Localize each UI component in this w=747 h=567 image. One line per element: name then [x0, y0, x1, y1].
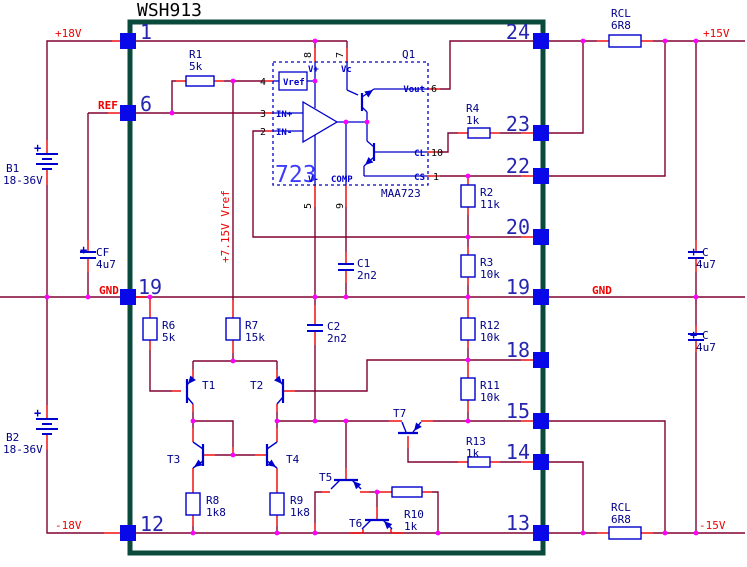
- pin-square-right-15: [533, 413, 549, 429]
- label-ic-pin_numbers-p9: 9: [335, 203, 346, 209]
- pin-square-left-6: [120, 105, 136, 121]
- resistor-body-r9: [270, 493, 284, 515]
- transistor-lead: [193, 442, 203, 449]
- label-capacitors-3-polarity: +: [690, 245, 697, 259]
- label-pins-right-5: 18: [506, 338, 530, 362]
- resistor-body-r11: [461, 378, 475, 400]
- resistor-body-r12: [461, 318, 475, 340]
- label-transistors-0-name: T1: [202, 379, 215, 392]
- label-pins-left-1: 6: [140, 92, 152, 116]
- label-capacitors-3-value: 4u7: [696, 258, 716, 271]
- label-ic-signals-cl: CL: [414, 149, 425, 159]
- junction-dot: [313, 79, 318, 84]
- label-resistors-0-value: 5k: [189, 60, 203, 73]
- junction-dot: [663, 531, 668, 536]
- label-ic-output_transistor: Q1: [402, 48, 415, 61]
- pin-square-right-18: [533, 352, 549, 368]
- schematic-canvas: WSH913161912242322201918151413+18VREFGND…: [0, 0, 747, 567]
- label-resistors-6-value: 1k8: [206, 506, 226, 519]
- pin-square-right-20: [533, 229, 549, 245]
- label-capacitors-4-polarity: +: [690, 328, 697, 342]
- label-nets-ref: REF: [98, 99, 118, 112]
- label-pins-right-3: 20: [506, 215, 530, 239]
- label-transistors-1-name: T2: [250, 379, 263, 392]
- label-resistors-8-value: 1k: [404, 520, 418, 533]
- junction-dot: [344, 419, 349, 424]
- label-transistors-6-name: T7: [393, 407, 406, 420]
- label-nets-n15v: -15V: [699, 519, 726, 532]
- label-capacitors-1-value: 2n2: [327, 332, 347, 345]
- junction-dot: [466, 235, 471, 240]
- label-batteries-0-polarity: +: [34, 141, 41, 155]
- junction-dot: [344, 120, 349, 125]
- label-batteries-1-polarity: +: [34, 406, 41, 420]
- wire: [315, 492, 322, 523]
- junction-dot: [466, 295, 471, 300]
- label-resistors-3-value: 1k: [466, 114, 480, 127]
- label-ic-pin_numbers-p10: 10: [431, 148, 443, 159]
- junction-dot: [313, 39, 318, 44]
- label-pins-right-1: 23: [506, 112, 530, 136]
- arrow-t2: [274, 376, 282, 384]
- label-resistors-11-value: 1k: [466, 447, 480, 460]
- label-transistors-5-name: T6: [349, 517, 362, 530]
- label-capacitors-2-value: 4u7: [96, 258, 116, 271]
- wire: [549, 462, 583, 533]
- wire: [440, 41, 533, 89]
- junction-dot: [663, 39, 668, 44]
- resistor-body-r3: [461, 255, 475, 277]
- label-resistors-2-value: 10k: [480, 268, 500, 281]
- label-nets-p15v: +15V: [703, 27, 730, 40]
- label-transistors-2-name: T3: [167, 453, 180, 466]
- wire: [549, 41, 583, 133]
- junction-dot: [191, 531, 196, 536]
- pin-square-left-12: [120, 525, 136, 541]
- label-transistors-3-name: T4: [286, 453, 300, 466]
- wire: [432, 492, 438, 533]
- label-resistors-9-value: 10k: [480, 391, 500, 404]
- junction-dot: [581, 531, 586, 536]
- junction-dot: [375, 490, 380, 495]
- label-pins-right-2: 22: [506, 154, 530, 178]
- label-nets-p18v: +18V: [55, 27, 82, 40]
- arrow-t1: [188, 376, 196, 384]
- schematic-page: WSH913161912242322201918151413+18VREFGND…: [0, 0, 747, 567]
- label-ic-vref_block: Vref: [283, 78, 305, 88]
- pin-square-right-13: [533, 525, 549, 541]
- label-ic-signals-cs: CS: [414, 173, 425, 183]
- junction-dot: [191, 419, 196, 424]
- label-capacitors-2-polarity: +: [80, 243, 87, 257]
- label-ic-signals-vplus: V+: [308, 65, 319, 75]
- arrow-t7: [414, 422, 422, 431]
- resistor-body-r2: [461, 185, 475, 207]
- pin-square-right-23: [533, 125, 549, 141]
- junction-dot: [275, 531, 280, 536]
- label-ic-signals-comp: COMP: [331, 175, 353, 185]
- label-pins-left-2: 19: [138, 275, 162, 299]
- label-capacitors-4-value: 4u7: [696, 341, 716, 354]
- pin-square-right-24: [533, 33, 549, 49]
- junction-dot: [313, 295, 318, 300]
- label-ic-pin_numbers-p7: 7: [335, 52, 346, 58]
- pin-square-left-19: [120, 289, 136, 305]
- wire: [408, 448, 458, 462]
- wire: [193, 421, 233, 447]
- junction-dot: [275, 419, 280, 424]
- junction-dot: [466, 174, 471, 179]
- arrow-t3: [194, 459, 203, 467]
- junction-dot: [694, 39, 699, 44]
- pin-square-right-19: [533, 289, 549, 305]
- arrow-q-out: [364, 90, 373, 97]
- label-ic-signals-vout: Vout: [403, 85, 425, 95]
- junction-dot: [581, 39, 586, 44]
- label-ic-signals-in_minus: IN-: [276, 128, 292, 138]
- wire: [549, 41, 665, 176]
- label-resistors-4-value: 5k: [162, 331, 176, 344]
- label-resistors-13-value: 6R8: [611, 513, 631, 526]
- wire: [549, 421, 665, 533]
- label-pins-right-8: 13: [506, 511, 530, 535]
- ic-internal-wire: [347, 90, 358, 95]
- transistor-lead: [362, 520, 371, 529]
- junction-dot: [313, 419, 318, 424]
- junction-dot: [231, 359, 236, 364]
- wire: [150, 350, 172, 391]
- label-resistors-1-value: 11k: [480, 198, 500, 211]
- junction-dot: [365, 120, 370, 125]
- label-ic-signals-vminus: V-: [308, 175, 319, 185]
- module-border: [130, 22, 543, 553]
- junction-dot: [313, 531, 318, 536]
- junction-dot: [344, 295, 349, 300]
- wire: [172, 81, 176, 113]
- resistor-body-r8: [186, 493, 200, 515]
- pin-square-right-14: [533, 454, 549, 470]
- label-ic-pin_numbers-p3: 3: [260, 109, 266, 120]
- junction-dot: [436, 531, 441, 536]
- opamp-triangle: [303, 102, 337, 142]
- label-pins-right-4: 19: [506, 275, 530, 299]
- transistor-lead: [402, 422, 406, 432]
- label-nets-gnd_left: GND: [99, 284, 119, 297]
- junction-dot: [86, 295, 91, 300]
- label-batteries-0-value: 18-36V: [3, 174, 43, 187]
- resistor-body-rcl-bottom: [609, 527, 641, 539]
- junction-dot: [170, 111, 175, 116]
- junction-dot: [45, 295, 50, 300]
- label-ic-signals-in_plus: IN+: [276, 110, 293, 120]
- label-capacitors-0-value: 2n2: [357, 269, 377, 282]
- label-resistors-12-value: 6R8: [611, 19, 631, 32]
- label-pins-left-3: 12: [140, 512, 164, 536]
- resistor-body-r10: [392, 487, 422, 497]
- label-ic-part: MAA723: [381, 187, 421, 200]
- label-resistors-5-value: 15k: [245, 331, 265, 344]
- pin-square-right-22: [533, 168, 549, 184]
- wire: [47, 41, 112, 140]
- label-pins-left-0: 1: [140, 20, 152, 44]
- junction-dot: [231, 453, 236, 458]
- label-batteries-1-value: 18-36V: [3, 443, 43, 456]
- junction-dot: [694, 531, 699, 536]
- label-resistors-7-value: 1k8: [290, 506, 310, 519]
- resistor-body-r1: [186, 76, 214, 86]
- label-ic-pin_numbers-p4: 4: [260, 77, 266, 88]
- label-nets-n18v: -18V: [55, 519, 82, 532]
- transistor-lead: [331, 480, 340, 489]
- resistor-body-r7: [226, 318, 240, 340]
- label-ic-signals-vc: Vc: [341, 65, 352, 75]
- label-ic-pin_numbers-p1: 1: [433, 172, 439, 183]
- label-transistors-4-name: T5: [319, 471, 332, 484]
- label-title: WSH913: [137, 0, 202, 21]
- junction-dot: [231, 79, 236, 84]
- label-ic-pin_numbers-p2: 2: [260, 127, 266, 138]
- label-ic-pin_numbers-p6: 6: [431, 84, 437, 95]
- label-resistors-10-value: 10k: [480, 331, 500, 344]
- resistor-body-r4: [468, 128, 490, 138]
- label-ic-pin_numbers-p5: 5: [303, 203, 314, 209]
- resistor-body-rcl-top: [609, 35, 641, 47]
- junction-dot: [694, 295, 699, 300]
- label-nets-vref_rail: +7.15V Vref: [219, 190, 232, 263]
- label-pins-right-7: 14: [506, 440, 530, 464]
- resistor-body-r6: [143, 318, 157, 340]
- arrow-t4: [267, 459, 276, 467]
- label-pins-right-0: 24: [506, 20, 530, 44]
- label-nets-gnd_right: GND: [592, 284, 612, 297]
- label-pins-right-6: 15: [506, 399, 530, 423]
- junction-dot: [466, 419, 471, 424]
- pin-square-left-1: [120, 33, 136, 49]
- transistor-lead: [267, 442, 277, 449]
- junction-dot: [466, 358, 471, 363]
- label-ic-pin_numbers-p8: 8: [303, 52, 314, 58]
